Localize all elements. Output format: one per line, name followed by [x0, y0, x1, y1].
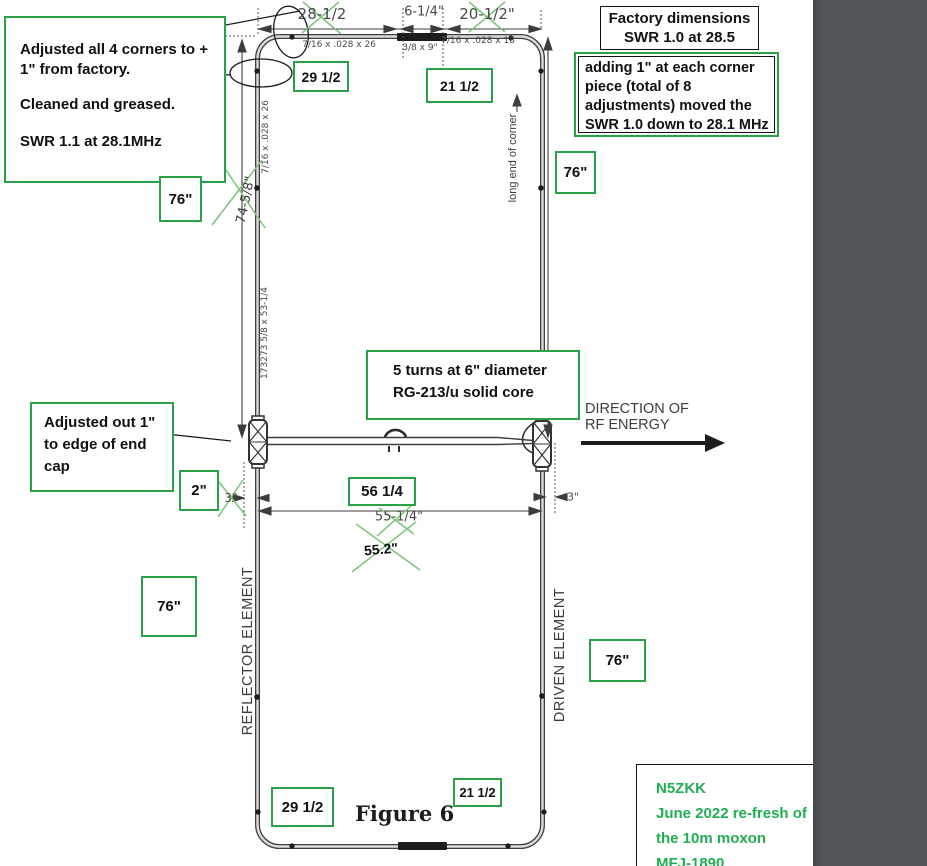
note-line: SWR 1.0 at 28.5 — [601, 28, 758, 47]
note-inner-frame: adding 1" at each corner piece (total of… — [578, 56, 775, 133]
note-line: Adjusted out 1" — [44, 412, 172, 434]
dim-55quarter: 55-1/4" — [375, 510, 423, 525]
antenna-outline — [258, 37, 543, 847]
dim-3in-left-old: 3" — [224, 491, 237, 505]
note-line: RG-213/u solid core — [393, 382, 578, 404]
note-line: Factory dimensions — [601, 9, 758, 28]
spec-tube-left-upper: 7/16 x .028 x 26 — [261, 100, 271, 174]
note-coil: 5 turns at 6" diameter RG-213/u solid co… — [366, 350, 580, 420]
label-line: DIRECTION OF — [585, 401, 689, 417]
value-box-top-29half: 29 1/2 — [293, 61, 349, 92]
note-line: to edge of end — [44, 434, 172, 456]
note-adjusted-out: Adjusted out 1" to edge of end cap — [30, 402, 174, 492]
label-rf-direction: DIRECTION OF RF ENERGY — [585, 401, 689, 433]
reflector-feed-block — [249, 416, 267, 468]
note-line: SWR 1.0 down to 28.1 MHz — [585, 116, 774, 135]
note-adding-corners: adding 1" at each corner piece (total of… — [574, 52, 779, 137]
credit-line: the 10m moxon — [656, 826, 837, 851]
dim-20half: 20-1/2" — [459, 5, 515, 23]
window-side-panel — [813, 0, 927, 866]
dim-3in-right: 3" — [567, 491, 579, 504]
credit-callsign: N5ZKK — [656, 776, 837, 801]
rf-direction-arrow — [581, 434, 725, 452]
tube-joint-dots — [254, 34, 546, 848]
figure-caption: Figure 6 — [355, 801, 454, 826]
value-box-2in: 2" — [179, 470, 219, 511]
value-box-bottom-29half: 29 1/2 — [271, 787, 334, 827]
value-box-76-right-top: 76" — [555, 151, 596, 194]
label-long-end-of-corner: long end of corner — [507, 114, 519, 203]
value-box-76-right-bottom: 76" — [589, 639, 646, 682]
note-credit: N5ZKK June 2022 re-fresh of the 10m moxo… — [636, 764, 838, 866]
note-line: adding 1" at each corner — [585, 59, 774, 78]
note-factory-dimensions: Factory dimensions SWR 1.0 at 28.5 — [600, 6, 759, 50]
note-line: Adjusted all 4 corners to + — [20, 40, 218, 60]
value-box-76-left-top: 76" — [159, 176, 202, 222]
note-line: SWR 1.1 at 28.1MHz — [20, 132, 218, 152]
tube-thick-segments — [397, 33, 447, 850]
spec-tube-top-mid: 3/8 x 9" — [402, 43, 437, 53]
dim-55-2-handwritten: 55.2" — [363, 540, 398, 559]
coax-clamp — [385, 430, 406, 452]
value-box-56quarter: 56 1/4 — [348, 477, 416, 506]
value-box-bottom-21half: 21 1/2 — [453, 778, 502, 807]
dimension-lines — [233, 26, 567, 516]
boom — [268, 438, 533, 445]
label-driven-element: DRIVEN ELEMENT — [552, 588, 568, 722]
dim-28half: 28-1/2 — [298, 5, 347, 23]
note-line: cap — [44, 456, 172, 478]
dim-6quarter: 6-1/4" — [404, 5, 444, 20]
value-box-76-left-bottom: 76" — [141, 576, 197, 637]
note-adjusted-corners: Adjusted all 4 corners to + 1" from fact… — [4, 16, 226, 183]
label-reflector-element: REFLECTOR ELEMENT — [240, 567, 256, 736]
moxon-antenna-figure: Adjusted all 4 corners to + 1" from fact… — [0, 0, 927, 866]
note-line: Cleaned and greased. — [20, 95, 218, 115]
credit-model: MFJ-1890 — [656, 851, 837, 866]
spec-tube-top-left: 7/16 x .028 x 26 — [302, 40, 376, 50]
spec-tube-top-right: 7/16 x .028 x 18 — [441, 36, 515, 46]
credit-line: June 2022 re-fresh of — [656, 801, 837, 826]
spec-tube-left-lower: 173273 5/8 x 53-1/4 — [260, 287, 270, 379]
note-line: 1" from factory. — [20, 60, 218, 80]
note-line: adjustments) moved the — [585, 97, 774, 116]
note-line: piece (total of 8 — [585, 78, 774, 97]
label-line: RF ENERGY — [585, 417, 689, 433]
note-line: 5 turns at 6" diameter — [393, 360, 578, 382]
value-box-top-21half: 21 1/2 — [426, 68, 493, 103]
